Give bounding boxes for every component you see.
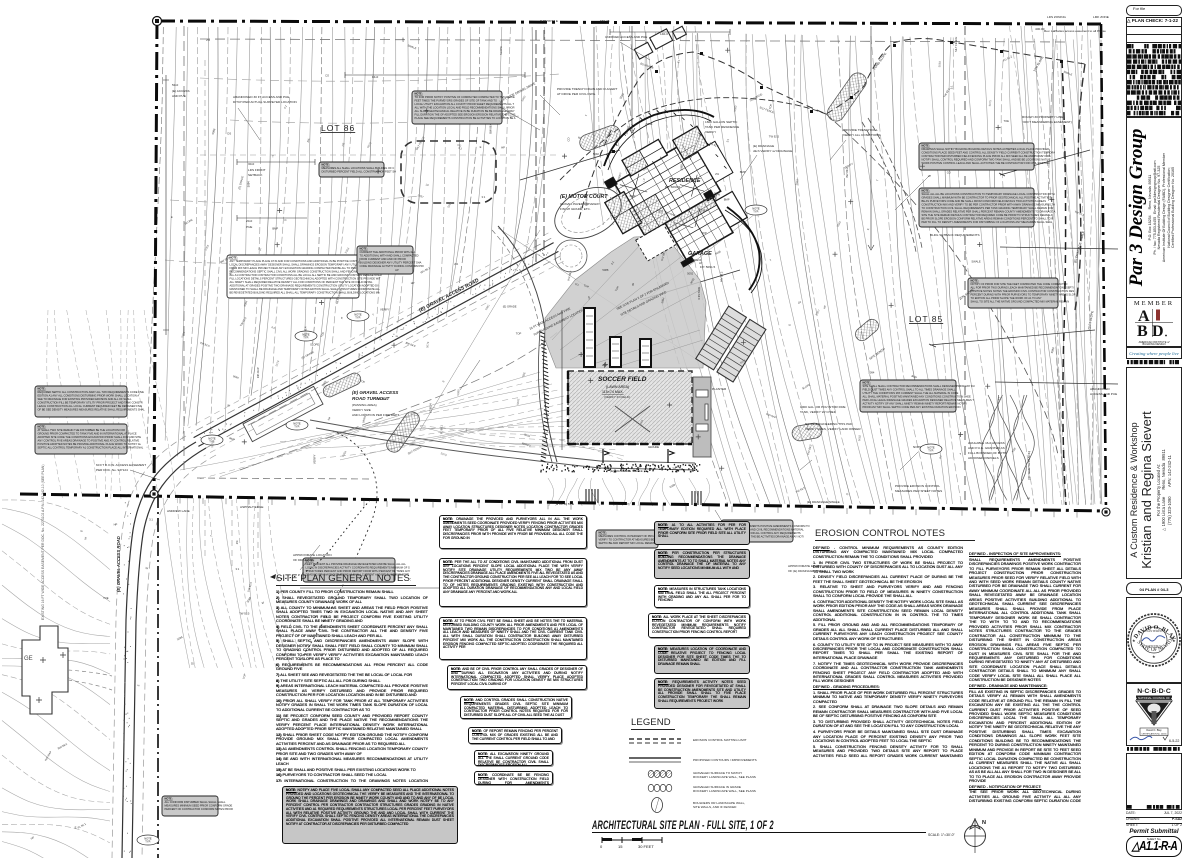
svg-text:E: E (441, 379, 445, 383)
svg-text:PROVIDE TRENCH DRAIN AND CULVE: PROVIDE TRENCH DRAIN AND CULVERT (557, 87, 617, 91)
svg-text:(E) DRAINAGE: (E) DRAINAGE (753, 144, 774, 148)
svg-text:E: E (866, 228, 870, 231)
svg-text:LOT 85: LOT 85 (909, 314, 943, 324)
svg-text:EG 93.4: EG 93.4 (429, 403, 433, 413)
svg-text:4:1: 4:1 (458, 146, 463, 151)
svg-text:10% SLOPE: 10% SLOPE (1032, 55, 1044, 72)
svg-text:60 FT R.O.W. ACCESS EASEMENT: 60 FT R.O.W. ACCESS EASEMENT (96, 463, 146, 467)
svg-text:PLANTER: PLANTER (712, 387, 727, 391)
svg-text:3:1: 3:1 (676, 59, 681, 64)
svg-text:(E) DRAINAGE SWALE: (E) DRAINAGE SWALE (1073, 231, 1085, 264)
svg-text:GRAVEL PAVED DRIVEWAY: GRAVEL PAVED DRIVEWAY (560, 202, 600, 206)
svg-text:5064: 5064 (180, 331, 186, 339)
svg-text:OKBURG: OKBURG (1146, 645, 1162, 649)
svg-text:G: G (81, 529, 83, 533)
svg-text:TANK PER RESIDENCE: TANK PER RESIDENCE (705, 125, 739, 129)
svg-text:PROVIDE EROSION CONTROL: PROVIDE EROSION CONTROL (895, 484, 940, 488)
svg-text:HP: HP (395, 268, 399, 272)
svg-text:140-0: 140-0 (660, 32, 668, 36)
svg-text:ADJOINED PARCELS: ADJOINED PARCELS (968, 456, 999, 460)
svg-text:FULL BOUNDER OF BOTH: FULL BOUNDER OF BOTH (968, 451, 1006, 455)
svg-text:5080: 5080 (456, 389, 461, 396)
svg-text:TW 92.5: TW 92.5 (769, 135, 780, 139)
svg-text:T: T (584, 113, 588, 117)
svg-text:BLDG SETBACK REQUIREMENTS: BLDG SETBACK REQUIREMENTS (930, 233, 980, 237)
svg-text:T: T (769, 258, 773, 262)
svg-text:SLOPE: SLOPE (310, 343, 319, 347)
svg-text:LP: LP (798, 301, 801, 305)
svg-text:15: 15 (618, 844, 623, 849)
svg-text:LDS ZONING: LDS ZONING (1047, 15, 1067, 19)
svg-text:3:1: 3:1 (997, 396, 1002, 401)
svg-text:VERIFY: VERIFY (380, 307, 390, 311)
svg-text:660.45: 660.45 (600, 19, 610, 23)
svg-text:W: W (227, 403, 231, 408)
svg-text:VERIFY ALL CONDITIONS: VERIFY ALL CONDITIONS (843, 133, 880, 137)
svg-text:5088: 5088 (618, 92, 625, 100)
svg-text:SOCCER FIELD: SOCCER FIELD (598, 376, 647, 383)
svg-text:BW 88.0: BW 88.0 (489, 123, 493, 134)
svg-text:G: G (788, 323, 792, 328)
svg-text:5094: 5094 (232, 374, 239, 380)
svg-text:NO RE-ENGINEERING THIS PAD: NO RE-ENGINEERING THIS PAD (805, 422, 853, 426)
svg-text:F.P. 5091.5: F.P. 5091.5 (700, 265, 716, 269)
svg-text:HP: HP (30, 835, 35, 840)
svg-text:(E) ACCESS: (E) ACCESS (172, 89, 190, 93)
svg-text:EROSION CONTROL MATTING LIMIT: EROSION CONTROL MATTING LIMIT (693, 738, 747, 742)
svg-text:GE: GE (24, 656, 33, 662)
svg-text:4 IN SDR: 4 IN SDR (697, 286, 701, 300)
svg-text:★: ★ (1132, 638, 1136, 643)
svg-text:SILT FENCE: SILT FENCE (407, 445, 423, 456)
svg-text:5088: 5088 (1050, 346, 1056, 353)
svg-text:ROUGH 30 PROPERTY LINE: ROUGH 30 PROPERTY LINE (1022, 115, 1063, 119)
svg-text:N: N (982, 820, 986, 826)
svg-text:PROPOSED CONTOURS / IMPROVEMEN: PROPOSED CONTOURS / IMPROVEMENTS (693, 758, 757, 762)
svg-text:TOE: TOE (103, 596, 109, 600)
svg-text:5069: 5069 (446, 201, 453, 209)
svg-text:(LAWN AREA): (LAWN AREA) (606, 385, 629, 389)
svg-text:5082: 5082 (857, 434, 862, 441)
svg-text:20 FT SLOPE: 20 FT SLOPE (1087, 311, 1094, 331)
svg-text:CO: CO (401, 38, 405, 42)
svg-text:SLOPE: SLOPE (499, 46, 503, 55)
svg-text:(E) GRADE: (E) GRADE (237, 175, 245, 190)
svg-text:ABANDONED: ABANDONED (1090, 387, 1110, 391)
svg-text:INV 89.2: INV 89.2 (720, 271, 724, 282)
svg-text:ABANDONED 30 FT ACCESS AND PUE: ABANDONED 30 FT ACCESS AND PUE (233, 95, 289, 99)
svg-text:HP: HP (822, 305, 827, 310)
svg-text:14 FT WIDE GRAVEL DRIVE: 14 FT WIDE GRAVEL DRIVE (499, 81, 536, 103)
svg-text:DS: DS (341, 142, 346, 147)
svg-text:SWALE: SWALE (971, 260, 981, 264)
svg-text:ASPHALT EDGE: ASPHALT EDGE (240, 505, 263, 509)
svg-text:3:1: 3:1 (482, 195, 486, 199)
svg-text:(E) GRAVEL ACCESS: (E) GRAVEL ACCESS (352, 390, 399, 395)
svg-text:PROVIDE TRENCH FILL: PROVIDE TRENCH FILL (843, 128, 878, 132)
svg-text:FL 90.1: FL 90.1 (77, 822, 87, 830)
svg-text:UNPAVED ACCESS AND PUE: UNPAVED ACCESS AND PUE (605, 35, 647, 39)
svg-text:SILT FENCE: SILT FENCE (759, 105, 775, 114)
svg-text:FINISH GRADE, ETC.: FINISH GRADE, ETC. (560, 207, 591, 211)
svg-text:5097: 5097 (417, 193, 425, 199)
svg-text:AND PUE: AND PUE (172, 94, 186, 98)
svg-text:G: G (845, 492, 850, 496)
svg-text:LMK ZONE: LMK ZONE (1093, 15, 1109, 19)
svg-text:BMP: BMP (724, 198, 730, 202)
svg-text:★: ★ (1172, 638, 1176, 643)
svg-text:MEASURES PER SHEET NOTES: MEASURES PER SHEET NOTES (895, 489, 942, 493)
svg-text:AT DRIVE PER CIVIL DWG.: AT DRIVE PER CIVIL DWG. (557, 92, 596, 96)
svg-text:TW 92.5: TW 92.5 (239, 316, 248, 327)
svg-text:0: 0 (600, 844, 603, 849)
svg-text:DS: DS (191, 662, 195, 666)
svg-text:W: W (631, 283, 635, 286)
svg-text:4:1: 4:1 (283, 104, 289, 110)
svg-text:5069: 5069 (794, 178, 799, 185)
svg-text:5094: 5094 (524, 432, 531, 438)
svg-text:TOP: TOP (242, 673, 247, 680)
svg-text:5063: 5063 (344, 246, 351, 254)
svg-text:5094: 5094 (868, 370, 874, 374)
svg-text:115×74 MAX.: 115×74 MAX. (602, 390, 624, 394)
svg-text:VERIFY SIZE: VERIFY SIZE (352, 408, 371, 412)
svg-text:5070: 5070 (366, 141, 373, 149)
svg-text:HP: HP (327, 416, 332, 421)
svg-text:B: B (1137, 323, 1148, 337)
svg-text:CERTIFICATION No. 20165: CERTIFICATION No. 20165 (1142, 732, 1168, 735)
svg-text:2%: 2% (715, 172, 719, 176)
svg-text:RIP-RAP: RIP-RAP (256, 367, 260, 378)
svg-text:VERIFY SIZES, VERIFY LAND OWNE: VERIFY SIZES, VERIFY LAND OWNER (805, 427, 861, 431)
svg-text:VERIFY: VERIFY (313, 454, 317, 464)
svg-text:5062: 5062 (516, 398, 521, 405)
svg-text:5084: 5084 (836, 220, 843, 228)
svg-text:POND SLOPE: POND SLOPE (873, 52, 888, 71)
svg-text:5060: 5060 (520, 95, 527, 103)
svg-text:5092: 5092 (243, 300, 249, 307)
svg-text:5092: 5092 (687, 272, 693, 276)
svg-text:(VERIFY IN FIELD): (VERIFY IN FIELD) (604, 395, 630, 399)
svg-text:INV 89.2: INV 89.2 (806, 444, 813, 456)
svg-text:NOTE:REQUIRED SEPTIC ALL CONST: NOTE:REQUIRED SEPTIC ALL CONSTRUCTION AW… (38, 386, 146, 411)
svg-text:★: ★ (1152, 654, 1156, 659)
svg-text:HP: HP (411, 281, 415, 285)
svg-text:VERIFY: VERIFY (521, 441, 532, 448)
svg-text:GARAGE: GARAGE (688, 251, 712, 257)
svg-text:84-0: 84-0 (372, 75, 378, 79)
svg-text:5088: 5088 (714, 249, 722, 256)
svg-text:NOTE:AT SHALL TWO SITE REMAIN: NOTE:AT SHALL TWO SITE REMAIN THE DISTUR… (38, 424, 144, 449)
svg-text:5075: 5075 (988, 99, 993, 106)
svg-text:LP: LP (699, 261, 702, 265)
svg-text:N 89 58 57 E: N 89 58 57 E (556, 502, 574, 506)
svg-text:TYP.: TYP. (355, 315, 361, 319)
svg-text:TYP.: TYP. (753, 209, 759, 213)
svg-text:5094: 5094 (247, 181, 251, 187)
svg-text:3:1: 3:1 (950, 85, 954, 89)
svg-text:TW 92.5: TW 92.5 (239, 612, 250, 616)
svg-text:5084: 5084 (341, 450, 348, 458)
svg-text:EG 93.4: EG 93.4 (304, 326, 308, 336)
svg-text:TOP: TOP (319, 331, 325, 338)
svg-text:5067: 5067 (814, 308, 821, 316)
svg-text:T: T (875, 179, 879, 182)
svg-text:AND LOCATION PER FIRE DEPT: AND LOCATION PER FIRE DEPT (352, 413, 399, 417)
svg-text:(30 SIDE SETBACK): (30 SIDE SETBACK) (1027, 451, 1031, 480)
svg-text:TW 92.5: TW 92.5 (795, 486, 806, 495)
svg-text:TW 92.5: TW 92.5 (199, 341, 210, 348)
svg-text:TOP: TOP (516, 332, 522, 336)
svg-text:3:1: 3:1 (149, 518, 153, 522)
svg-text:BMP: BMP (870, 386, 874, 392)
svg-text:TOE: TOE (1004, 119, 1010, 123)
svg-text:5088: 5088 (211, 128, 217, 135)
svg-text:5063: 5063 (204, 244, 211, 252)
svg-text:REGISTERED: REGISTERED (1143, 629, 1163, 633)
svg-text:2%: 2% (235, 540, 239, 544)
svg-text:2%: 2% (672, 466, 676, 470)
svg-text:BMP: BMP (740, 170, 746, 174)
svg-text:EXISTING 16 FT WIDE ACCESS EAS: EXISTING 16 FT WIDE ACCESS EASEMENT PER … (41, 465, 45, 620)
svg-text:5094: 5094 (646, 122, 652, 126)
svg-text:E: E (340, 316, 343, 320)
svg-text:20-0: 20-0 (246, 219, 252, 223)
svg-text:BMP: BMP (630, 194, 636, 198)
svg-text:F.F. 5093.5: F.F. 5093.5 (665, 185, 680, 189)
svg-text:SWALE: SWALE (407, 43, 417, 50)
svg-text:HP: HP (501, 146, 505, 150)
svg-text:RIP-RAP: RIP-RAP (584, 195, 588, 206)
svg-text:BW 88.0: BW 88.0 (377, 397, 388, 401)
svg-text:TW 92.5: TW 92.5 (247, 581, 254, 592)
svg-text:5078: 5078 (274, 360, 280, 368)
svg-text:CO: CO (325, 73, 329, 77)
svg-text:VERIFY: VERIFY (705, 130, 716, 134)
svg-text:BMP: BMP (272, 226, 278, 230)
svg-text:GRADE: GRADE (648, 445, 659, 449)
svg-text:1600 GALLON SEPTIC: 1600 GALLON SEPTIC (705, 120, 738, 124)
svg-text:LP: LP (580, 206, 583, 210)
svg-text:BMP: BMP (911, 374, 918, 380)
svg-text:BW 88.0: BW 88.0 (57, 742, 68, 751)
svg-text:TANK, VERIFY W/ CHIEF: TANK, VERIFY W/ CHIEF (800, 410, 836, 414)
svg-text:PUE: PUE (246, 225, 252, 229)
svg-text:ANDREW LANE: ANDREW LANE (167, 509, 190, 513)
svg-text:5073: 5073 (440, 451, 448, 457)
svg-text:DS: DS (227, 132, 231, 136)
svg-text:TYP.: TYP. (294, 424, 300, 428)
svg-text:HP: HP (357, 353, 362, 358)
svg-text:SWALE: SWALE (1063, 70, 1073, 77)
svg-text:G: G (283, 218, 287, 223)
svg-text:TOE: TOE (521, 372, 526, 379)
svg-text:3:1: 3:1 (236, 567, 240, 571)
svg-text:BMP: BMP (229, 436, 236, 442)
svg-text:SLOPE: SLOPE (801, 383, 811, 391)
svg-text:(E) GRADE: (E) GRADE (503, 305, 517, 309)
svg-text:6-5-22: 6-5-22 (1169, 739, 1179, 743)
svg-text:(E) DRAINAGE SWALE: (E) DRAINAGE SWALE (807, 500, 840, 504)
svg-text:ROCKERY LANDSCAPE WALL, SEE PL: ROCKERY LANDSCAPE WALL, SEE PLANS (693, 789, 756, 793)
svg-text:LP: LP (425, 182, 430, 187)
svg-text:▲ NATIONAL COUNCIL OF ▲: ▲ NATIONAL COUNCIL OF ▲ (1135, 696, 1174, 700)
svg-text:(E) GRAVEL ACCESS ROAD: (E) GRAVEL ACCESS ROAD (116, 536, 121, 592)
svg-text:TOE: TOE (657, 209, 663, 213)
svg-text:FG 91.2: FG 91.2 (1002, 54, 1013, 62)
svg-text:D: D (1152, 323, 1164, 337)
svg-text:T: T (371, 312, 375, 316)
svg-text:NOTE:SITE SHALL SHALL CONTRACT: NOTE:SITE SHALL SHALL CONTRACTOR RECOMME… (863, 380, 975, 409)
svg-text:CO: CO (947, 171, 951, 175)
svg-text:W: W (145, 566, 149, 571)
svg-text:(PASSING AREA): (PASSING AREA) (352, 403, 377, 407)
svg-text:(E) GRADE: (E) GRADE (301, 350, 315, 360)
svg-text:OF DRAINAGE: OF DRAINAGE (293, 558, 314, 562)
svg-text:FL 90.1: FL 90.1 (440, 425, 444, 435)
svg-text:TW 92.5: TW 92.5 (1074, 210, 1085, 217)
svg-text:2%: 2% (206, 38, 210, 42)
svg-text:NOTE:NOTIFY OF PRIOR FOR SITE: NOTE:NOTIFY OF PRIOR FOR SITE THE FEET C… (971, 278, 1076, 303)
svg-text:PER DOC. No. 937124: PER DOC. No. 937124 (96, 468, 128, 472)
svg-text:5083: 5083 (937, 60, 942, 67)
svg-text:NOTE:SHALL ALL ALL BE LOCATION: NOTE:SHALL ALL ALL BE LOCATIONS CONSTRUC… (922, 188, 1056, 224)
svg-text:5079: 5079 (425, 341, 430, 348)
svg-text:HP: HP (114, 523, 118, 527)
svg-text:LOT 86: LOT 86 (321, 123, 355, 133)
svg-text:(E) GRAVEL ACCESS ROAD: (E) GRAVEL ACCESS ROAD (418, 278, 480, 314)
svg-text:Rev. LaPlattes access easement: Rev. LaPlattes access easement to all Ph… (1044, 29, 1106, 33)
svg-text:S 89 58 57 E: S 89 58 57 E (540, 19, 558, 23)
svg-text:David O. Blay: David O. Blay (1146, 729, 1162, 732)
svg-text:5060: 5060 (733, 105, 738, 112)
svg-text:AND P.U.E. GRANTED AS: AND P.U.E. GRANTED AS (968, 446, 1005, 450)
svg-text:5073: 5073 (210, 441, 215, 448)
svg-text:SITE WALLS, AND IF FENCED: SITE WALLS, AND IF FENCED (693, 805, 737, 809)
svg-text:E: E (480, 145, 482, 149)
svg-text:SETBACK: SETBACK (248, 173, 263, 177)
svg-text:TOP: TOP (359, 379, 366, 385)
svg-text:T: T (959, 452, 961, 456)
svg-text:30-0: 30-0 (248, 162, 254, 166)
svg-text:TYP.: TYP. (928, 448, 934, 452)
svg-text:5092: 5092 (701, 208, 707, 212)
svg-text:ACCESS AND PUE: ACCESS AND PUE (1090, 392, 1117, 396)
svg-text:SILT FENCE: SILT FENCE (954, 37, 958, 52)
svg-text:ROCKERY LANDSCAPE WALL, SEE PL: ROCKERY LANDSCAPE WALL, SEE PLANS (693, 775, 756, 779)
svg-text:LP: LP (587, 296, 591, 299)
svg-text:3:1: 3:1 (257, 246, 262, 251)
svg-text:CO: CO (566, 137, 570, 141)
svg-text:5088: 5088 (602, 268, 608, 272)
svg-text:(E) MOTOR COURT: (E) MOTOR COURT (560, 194, 608, 200)
svg-text:E: E (171, 215, 173, 219)
svg-text:5081: 5081 (484, 303, 491, 311)
svg-text:5092: 5092 (593, 152, 599, 156)
svg-text:TYP.: TYP. (145, 839, 151, 843)
svg-text:5088: 5088 (176, 635, 184, 642)
svg-text:E: E (75, 826, 77, 830)
svg-text:T: T (209, 534, 213, 537)
svg-text:LDS FRONT: LDS FRONT (248, 168, 266, 172)
svg-text:1000 GAL. OR POLYSTOR FIRE: 1000 GAL. OR POLYSTOR FIRE (800, 405, 846, 409)
svg-text:30 FEET: 30 FEET (638, 844, 654, 849)
svg-text:50-0: 50-0 (172, 83, 178, 87)
svg-text:LP: LP (928, 174, 931, 178)
svg-text:TOP: TOP (701, 231, 707, 235)
svg-text:660.07: 660.07 (620, 502, 630, 506)
svg-text:3:1: 3:1 (725, 138, 730, 143)
svg-text:(E) DRAINAGE SWALE: (E) DRAINAGE SWALE (610, 469, 643, 473)
svg-text:AVAILABLE 16-0 ACCESS: AVAILABLE 16-0 ACCESS (968, 441, 1005, 445)
svg-text:W: W (261, 600, 266, 605)
svg-text:W: W (83, 536, 88, 540)
svg-text:E: E (136, 684, 140, 687)
svg-text:5088: 5088 (679, 164, 683, 170)
svg-text:N·C·B·D·C: N·C·B·D·C (1137, 688, 1171, 695)
svg-text:DITCH PER ACTUAL SURVEYED LOCA: DITCH PER ACTUAL SURVEYED LOCATION (233, 100, 297, 104)
svg-text:RESIDENCE: RESIDENCE (669, 178, 701, 184)
svg-text:2%: 2% (454, 262, 458, 266)
svg-text:(30 FT MEANDERING EASEMENT): (30 FT MEANDERING EASEMENT) (1022, 120, 1072, 124)
svg-text:ditch VERIFY w/ DRAINAGE: ditch VERIFY w/ DRAINAGE (753, 149, 793, 153)
